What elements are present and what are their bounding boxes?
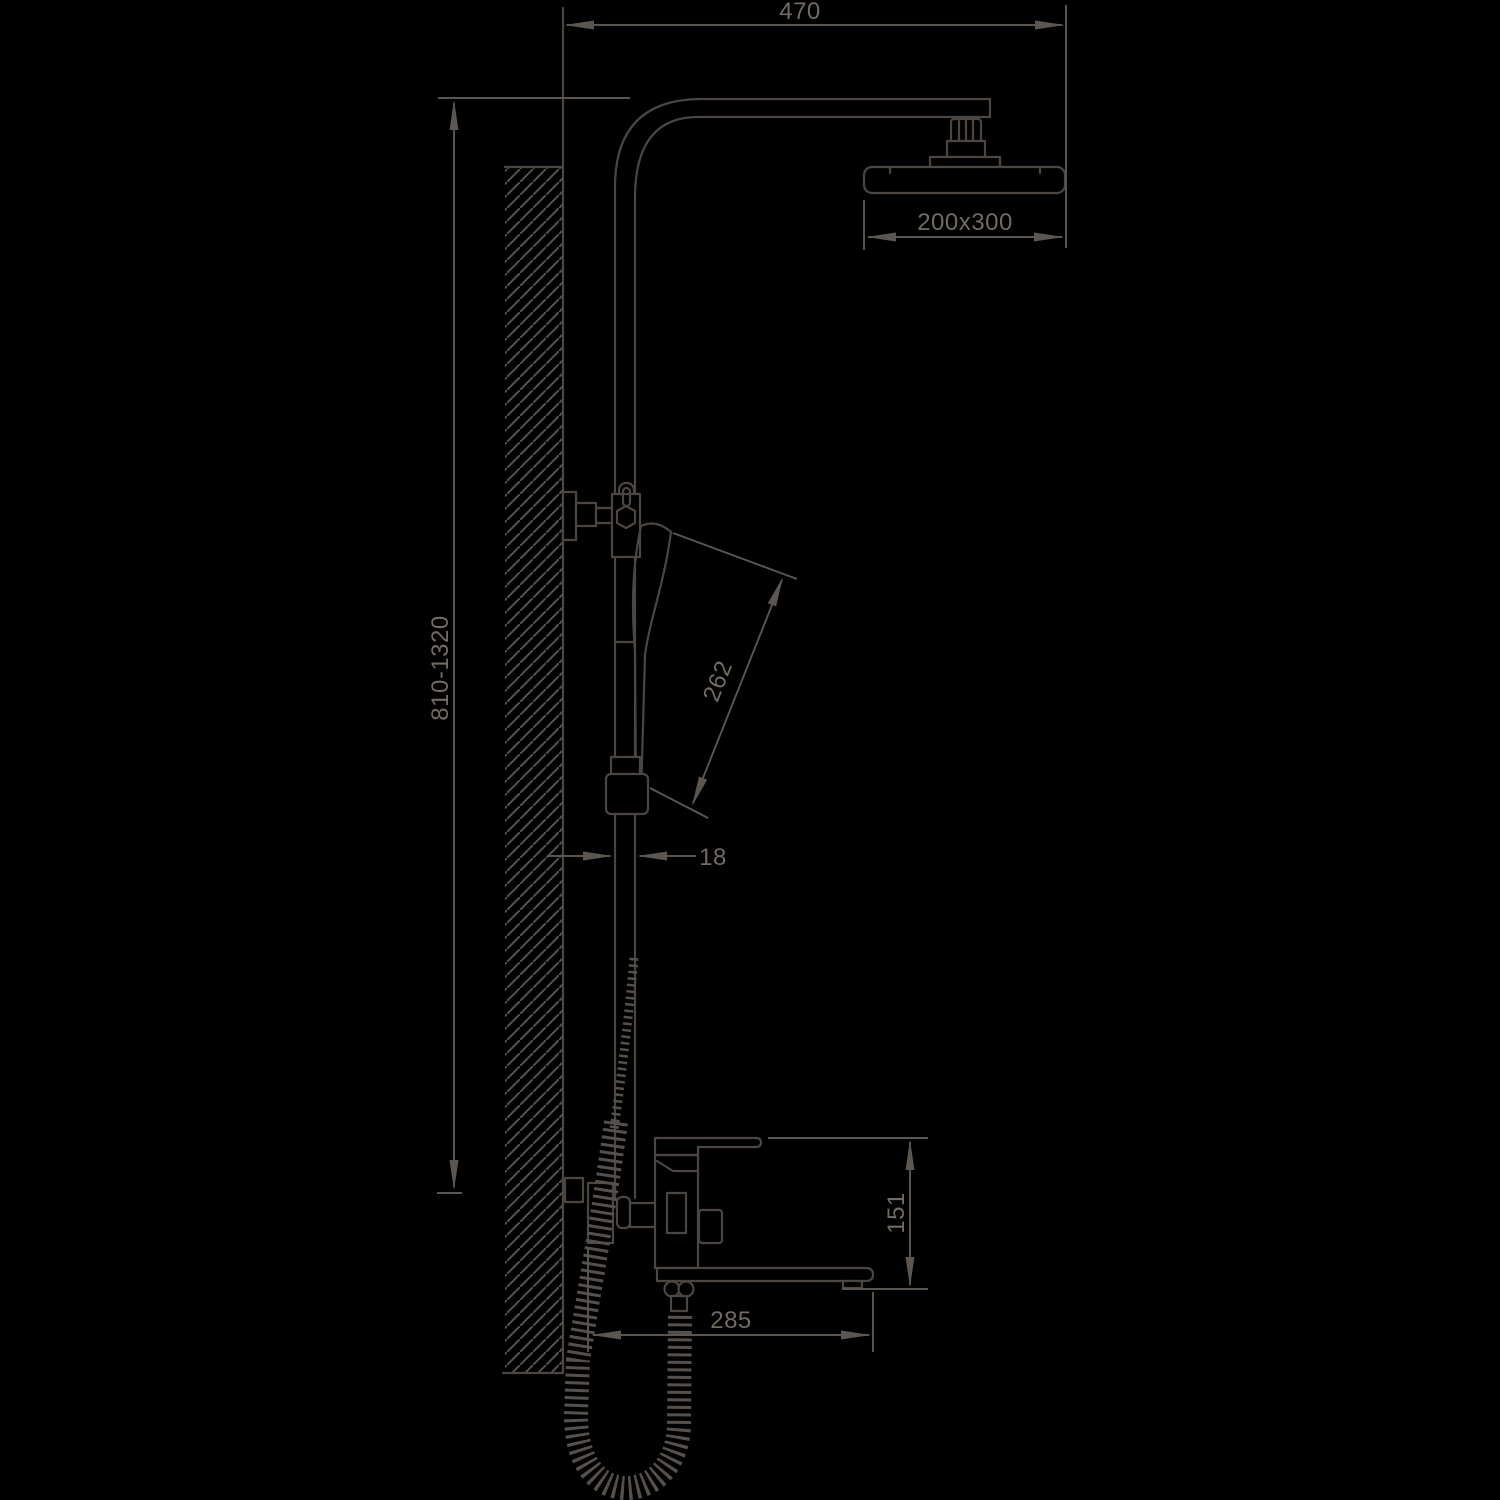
overhead-shower <box>864 119 1065 193</box>
riser-and-arm <box>615 99 990 1198</box>
hose-nut-right <box>679 1282 694 1297</box>
upper-wall-bracket <box>563 483 640 557</box>
inlet-wall-stub <box>565 1178 583 1202</box>
dimension-spout-reach: 285 <box>588 1247 873 1352</box>
hose-upper <box>614 958 634 1130</box>
mixer-lever <box>655 1138 761 1155</box>
bath-spout <box>657 1268 873 1281</box>
dim-label-18: 18 <box>699 844 727 871</box>
diverter-knob <box>699 1210 722 1243</box>
dimension-hand-shower-length: 262 <box>650 533 797 818</box>
hose-nipple <box>671 1296 687 1311</box>
dim-label-200x300: 200x300 <box>917 209 1013 236</box>
inlet-cylinder <box>617 1197 630 1228</box>
shower-technical-drawing: 470 200x300 810-1320 262 <box>0 0 1500 1500</box>
slider-block <box>606 774 648 814</box>
dim-label-285: 285 <box>710 1307 752 1334</box>
hand-shower-right-edge <box>641 524 671 797</box>
shower-head <box>864 167 1065 193</box>
clamp-knob <box>617 506 635 528</box>
inlet-flange <box>667 1193 686 1233</box>
dim-label-151: 151 <box>883 1192 910 1234</box>
wall-hatch <box>505 167 563 1373</box>
drawing-canvas: 470 200x300 810-1320 262 <box>0 0 1500 1500</box>
bracket-neck <box>596 508 613 523</box>
dimension-head-size: 200x300 <box>864 200 1064 250</box>
riser-pipe <box>615 99 990 1198</box>
spout-aerator <box>843 1281 862 1288</box>
mixer <box>655 1138 873 1311</box>
dim-label-470: 470 <box>779 0 821 25</box>
dim-label-262: 262 <box>698 657 738 706</box>
dimension-pipe-width: 18 <box>548 844 727 871</box>
hose-nut-left <box>665 1282 680 1297</box>
lower-wall-bracket <box>565 1178 668 1243</box>
bracket-wall-plate <box>563 492 576 540</box>
wall <box>503 8 563 1373</box>
dimension-mixer-height: 151 <box>768 1138 928 1289</box>
bracket-cylinder <box>576 503 596 526</box>
dim-label-810-1320: 810-1320 <box>427 615 454 720</box>
